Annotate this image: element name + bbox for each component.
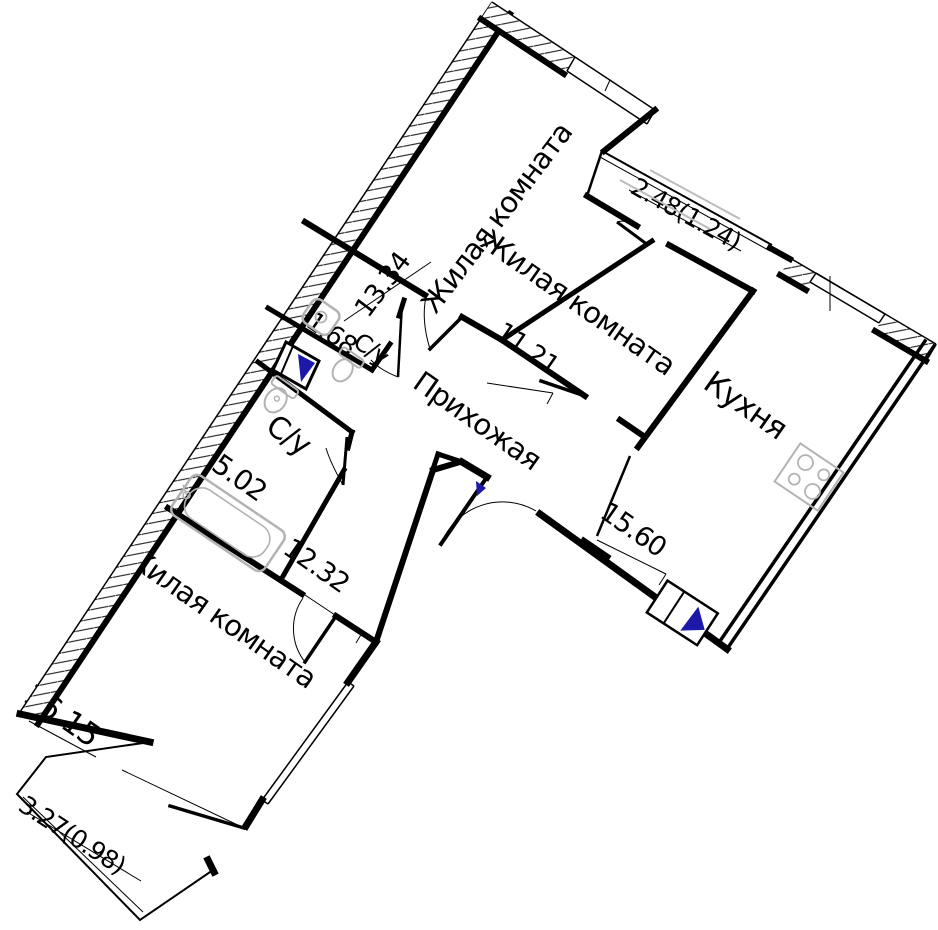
room-labels: Жилая комната 13.34 Жилая комната 11.21 … [0,0,938,930]
room-name-bath-large: С/у [261,411,316,462]
room-name-living2: Жилая комната [476,226,680,381]
room-area-kitchen: 15.60 [596,498,671,562]
room-area-living2: 11.21 [491,318,563,379]
room-area-bath-large: 5.02 [207,450,271,506]
room-area-hallway: 12.32 [279,534,354,598]
room-name-kitchen: Кухня [698,367,792,446]
room-name-hallway: Прихожая [408,367,545,475]
room-area-loggia: 2.48(1.24) [627,174,745,254]
floor-plan-canvas: Жилая комната 13.34 Жилая комната 11.21 … [0,0,938,930]
room-area-living1: 13.34 [350,248,415,322]
room-area-living3: 16.15 [18,679,104,752]
room-area-balcony: 3.27(0.98) [15,792,130,879]
